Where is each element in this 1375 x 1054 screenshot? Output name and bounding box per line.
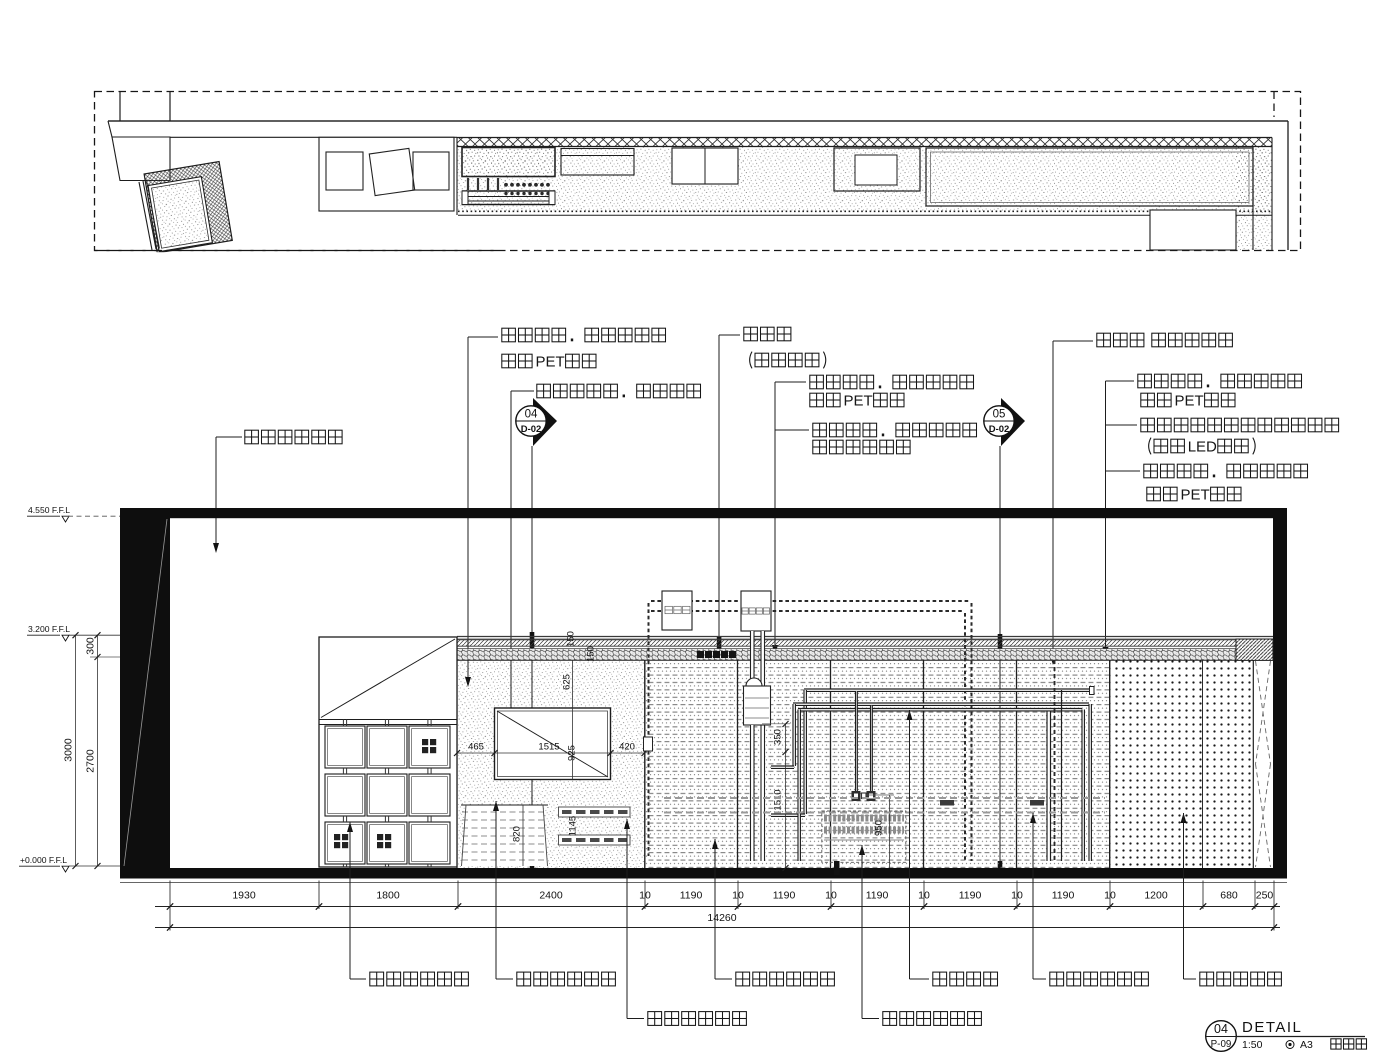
svg-text:PET: PET — [1181, 487, 1210, 504]
svg-text:4.550 F.F.L: 4.550 F.F.L — [28, 505, 70, 515]
svg-text:1190: 1190 — [959, 890, 982, 902]
svg-text:14260: 14260 — [707, 912, 736, 924]
svg-text:1510: 1510 — [772, 789, 783, 810]
svg-text:150: 150 — [585, 646, 596, 662]
svg-text:PET: PET — [536, 354, 565, 371]
svg-text:D-02: D-02 — [521, 424, 542, 435]
svg-text:PET: PET — [1175, 393, 1204, 410]
svg-text:465: 465 — [468, 742, 484, 753]
svg-text:LED: LED — [1188, 439, 1217, 456]
svg-text:1190: 1190 — [866, 890, 889, 902]
svg-text:04: 04 — [525, 409, 538, 421]
svg-text:10: 10 — [1104, 890, 1116, 902]
svg-text:2400: 2400 — [539, 890, 563, 902]
svg-text:680: 680 — [1220, 890, 1238, 902]
svg-text:150: 150 — [565, 631, 576, 647]
svg-text:PET: PET — [844, 393, 873, 410]
svg-text:950: 950 — [873, 820, 884, 836]
svg-text:10: 10 — [825, 890, 837, 902]
svg-text:300: 300 — [85, 637, 97, 655]
svg-text:350: 350 — [772, 729, 783, 745]
svg-text:1:50: 1:50 — [1242, 1039, 1263, 1051]
svg-text:05: 05 — [993, 409, 1006, 421]
svg-text:D-02: D-02 — [989, 424, 1010, 435]
svg-text:1145: 1145 — [567, 816, 578, 836]
svg-text:10: 10 — [639, 890, 651, 902]
svg-text:DETAIL: DETAIL — [1242, 1019, 1302, 1036]
svg-text:1515: 1515 — [538, 742, 559, 753]
svg-text:1190: 1190 — [680, 890, 703, 902]
svg-text:1190: 1190 — [1052, 890, 1075, 902]
svg-text:3.200 F.F.L: 3.200 F.F.L — [28, 624, 70, 634]
svg-text:10: 10 — [732, 890, 744, 902]
svg-text:925: 925 — [566, 745, 577, 761]
svg-text:1200: 1200 — [1144, 890, 1168, 902]
svg-text:04: 04 — [1214, 1022, 1228, 1036]
svg-text:P-09: P-09 — [1211, 1039, 1232, 1050]
svg-text:820: 820 — [511, 826, 522, 842]
svg-text:1930: 1930 — [232, 890, 256, 902]
svg-text:+0.000 F.F.L: +0.000 F.F.L — [20, 855, 67, 865]
svg-text:A3: A3 — [1300, 1039, 1313, 1051]
svg-text:10: 10 — [918, 890, 930, 902]
svg-text:420: 420 — [619, 742, 635, 753]
svg-text:625: 625 — [561, 674, 572, 690]
svg-text:1190: 1190 — [773, 890, 796, 902]
svg-text:10: 10 — [1011, 890, 1023, 902]
svg-text:3000: 3000 — [63, 738, 75, 762]
svg-text:250: 250 — [1256, 890, 1274, 902]
svg-text:2700: 2700 — [85, 749, 97, 773]
svg-text:1800: 1800 — [376, 890, 400, 902]
